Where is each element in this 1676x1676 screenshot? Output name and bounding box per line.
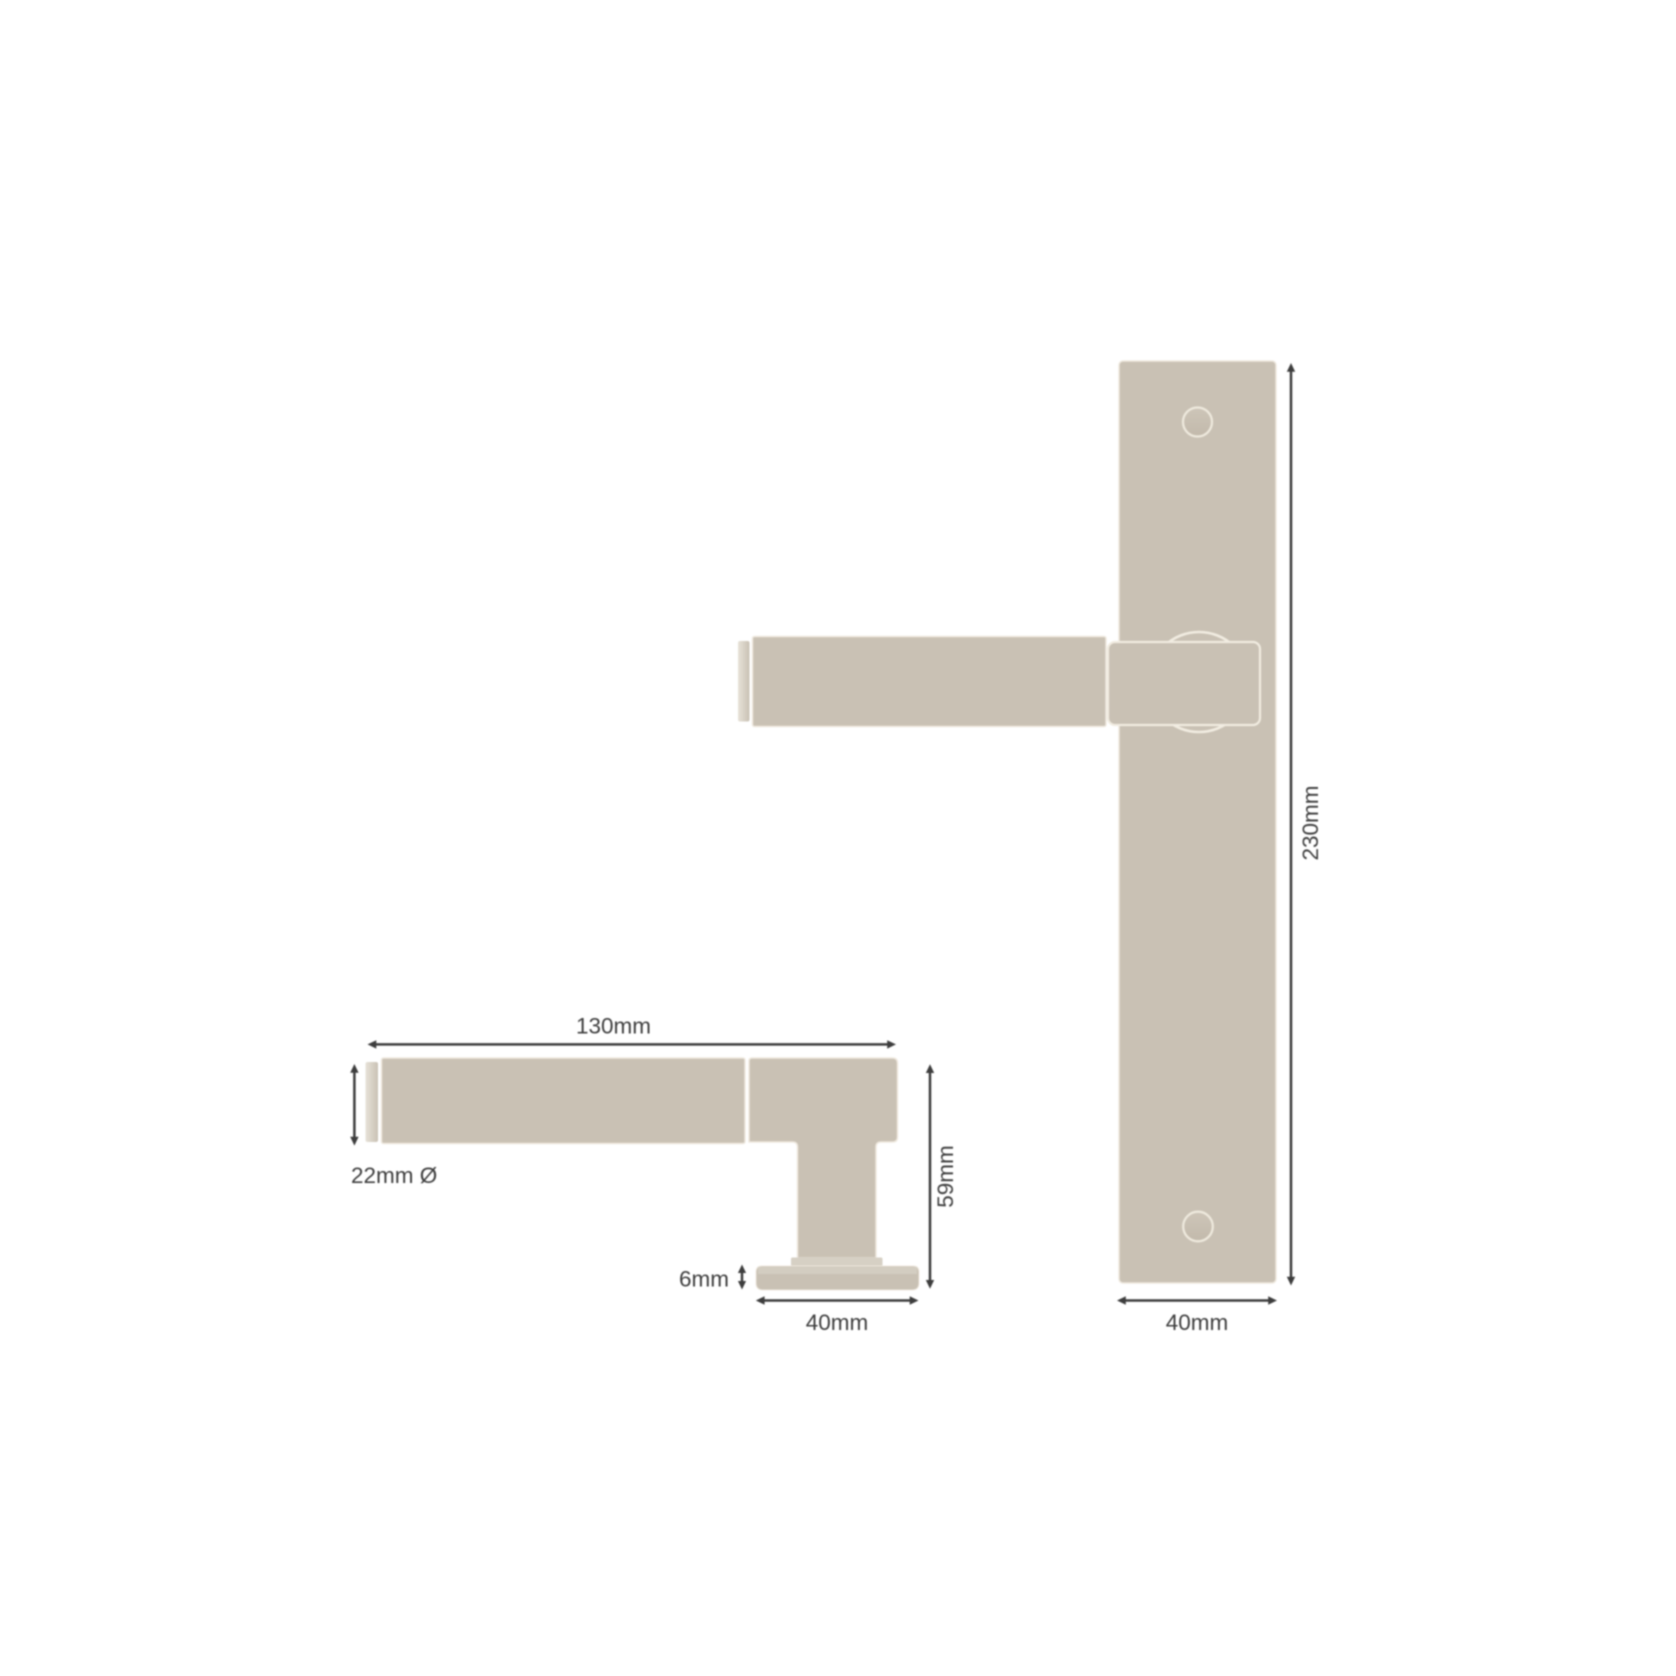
svg-text:40mm: 40mm (1166, 1310, 1229, 1335)
svg-text:22mm Ø: 22mm Ø (351, 1163, 437, 1188)
svg-text:230mm: 230mm (1298, 785, 1323, 860)
svg-text:130mm: 130mm (576, 1014, 651, 1039)
svg-text:40mm: 40mm (806, 1310, 869, 1335)
svg-text:6mm: 6mm (679, 1267, 729, 1292)
svg-text:59mm: 59mm (933, 1145, 958, 1208)
